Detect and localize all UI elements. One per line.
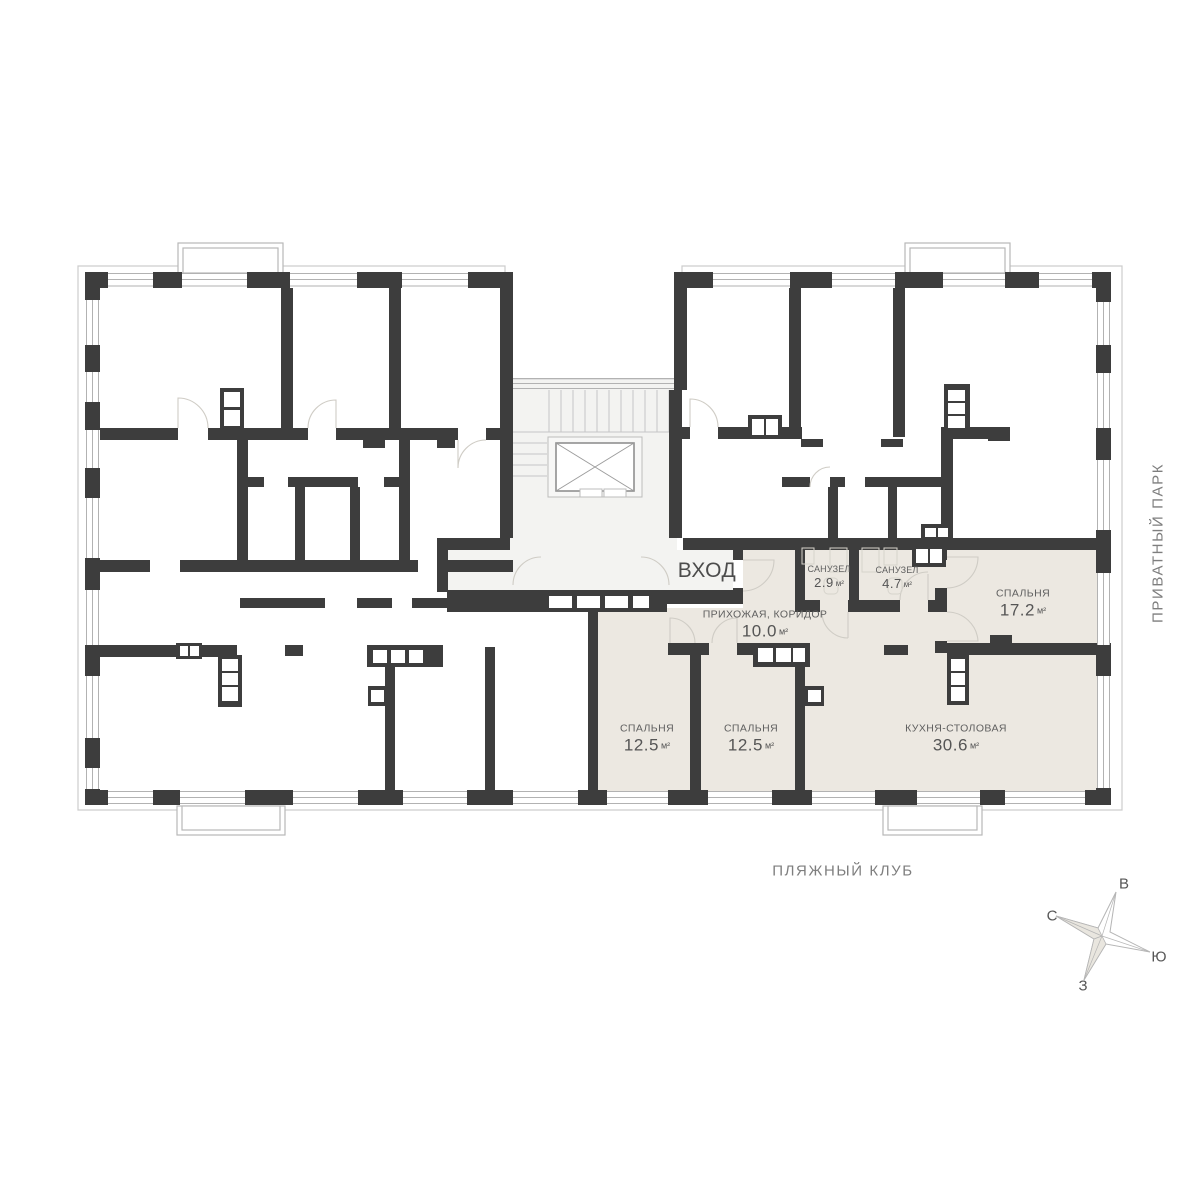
floor-plan-page: ВХОД ПРИХОЖАЯ, КОРИДОР 10.0м² САНУЗЕЛ 2.… (0, 0, 1200, 1200)
compass-rose (1056, 892, 1150, 980)
elevator-icon (548, 437, 642, 497)
floor-plan-svg (0, 0, 1200, 1200)
